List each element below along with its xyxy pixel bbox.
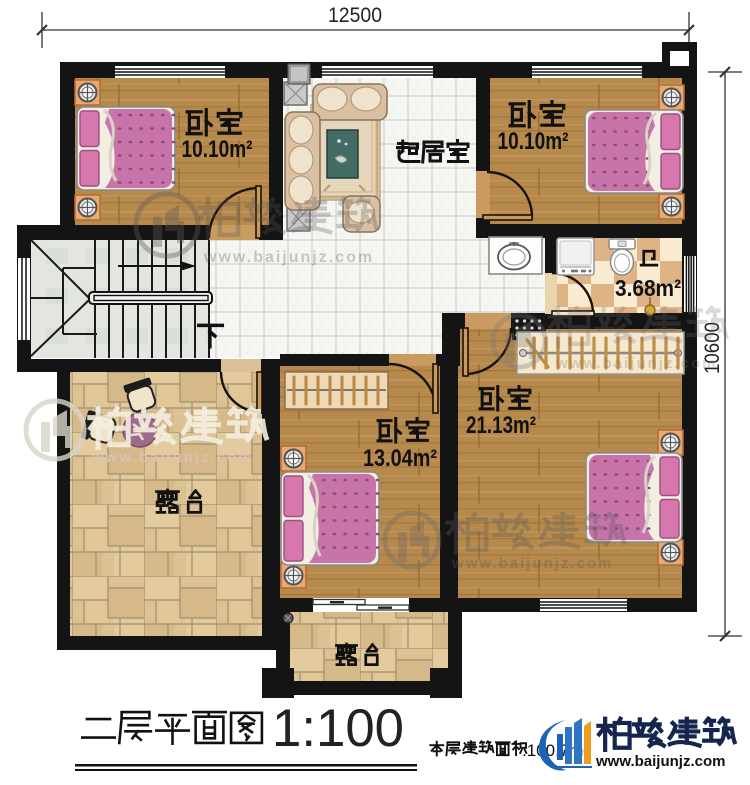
svg-text:21.13m²: 21.13m² [466, 412, 536, 439]
svg-text:3.68m²: 3.68m² [615, 275, 681, 301]
svg-text:10.10m²: 10.10m² [182, 136, 253, 163]
svg-text:www.baijunjz.com: www.baijunjz.com [91, 449, 253, 466]
svg-text:www.baijunjz.com: www.baijunjz.com [595, 753, 725, 770]
svg-text:12500: 12500 [328, 4, 382, 27]
svg-text:www.baijunjz.com: www.baijunjz.com [451, 555, 613, 572]
svg-text:13.04m²: 13.04m² [363, 445, 437, 472]
svg-text:www.baijunjz.com: www.baijunjz.com [555, 355, 717, 372]
svg-text:www.baijunjz.com: www.baijunjz.com [203, 249, 374, 266]
svg-text:1:100: 1:100 [272, 699, 404, 758]
svg-text:10.10m²: 10.10m² [498, 128, 569, 155]
